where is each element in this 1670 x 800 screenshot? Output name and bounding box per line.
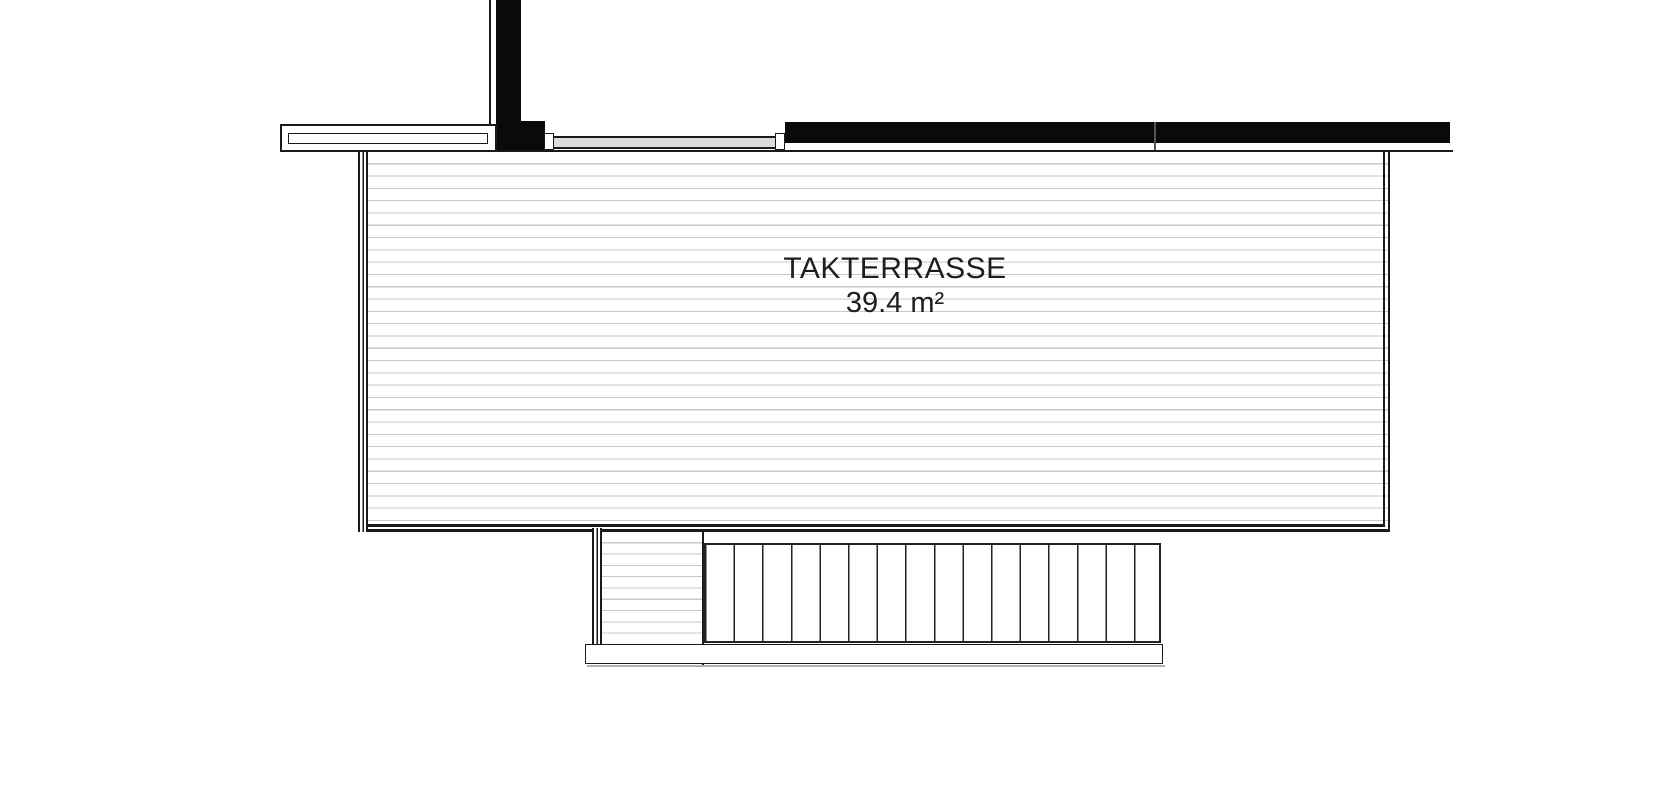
door-jamb-left	[544, 133, 554, 150]
wall-joint-line	[1154, 122, 1156, 152]
landing-strip	[602, 532, 702, 644]
exterior-wall-top	[785, 122, 1450, 143]
bottom-step-band	[585, 644, 1163, 664]
terrace-deck	[358, 152, 1390, 532]
railing-inner	[288, 133, 488, 144]
exterior-wall-corner	[496, 121, 545, 150]
staircase-treads	[703, 543, 1161, 643]
exterior-wall-vertical	[496, 0, 521, 122]
room-name: TAKTERRASSE	[695, 252, 1095, 286]
room-label-block: TAKTERRASSE 39.4 m²	[695, 252, 1095, 320]
door-jamb-right	[775, 133, 785, 150]
sliding-door	[545, 136, 785, 149]
floor-plan-canvas: TAKTERRASSE 39.4 m²	[0, 0, 1670, 800]
terrace-left-edge	[358, 152, 368, 532]
bottom-step-shadow-line	[587, 665, 1165, 667]
terrace-notch-edge	[592, 528, 602, 644]
room-area: 39.4 m²	[695, 286, 1095, 320]
